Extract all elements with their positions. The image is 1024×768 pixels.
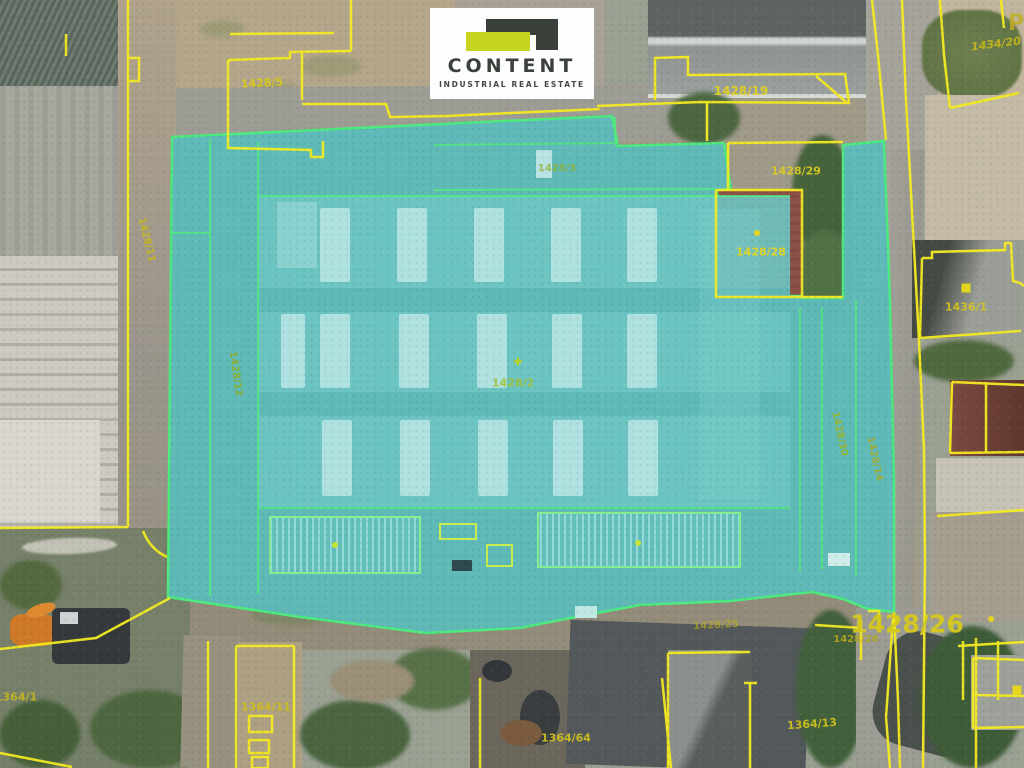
lines-parcel-1436 bbox=[920, 243, 1024, 338]
small-building-outline bbox=[249, 740, 269, 753]
logo-card: CONTENT INDUSTRIAL REAL ESTATE bbox=[430, 8, 594, 99]
lines-bottom-right bbox=[815, 611, 1024, 768]
logo-mark-lime-bar bbox=[466, 32, 530, 51]
lines-bottom-center bbox=[480, 652, 757, 768]
aerial-cadastral-map: 1428/51428/191428/291428/281434/20P1436/… bbox=[0, 0, 1024, 768]
logo-tagline: INDUSTRIAL REAL ESTATE bbox=[430, 80, 594, 89]
logo-mark-icon bbox=[466, 19, 558, 52]
cadastral-overlay bbox=[0, 0, 1024, 768]
logo-mark-dark-leg bbox=[536, 19, 558, 50]
small-building-outline bbox=[252, 757, 268, 768]
small-building-outline bbox=[249, 716, 272, 732]
logo-name: CONTENT bbox=[430, 55, 594, 77]
lines-right-buildings bbox=[937, 382, 1024, 516]
lines-top-right bbox=[597, 57, 849, 141]
